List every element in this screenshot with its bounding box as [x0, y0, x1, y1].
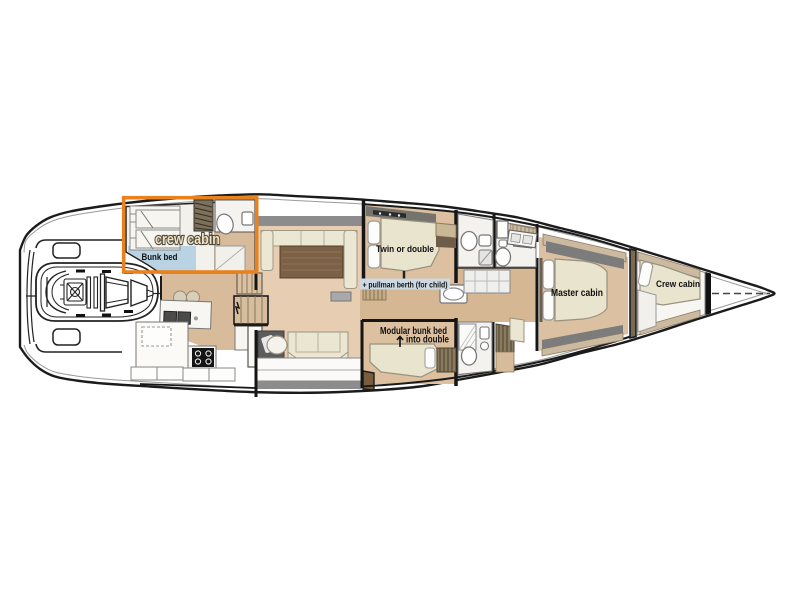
svg-text:into double: into double — [406, 335, 449, 346]
svg-text:Bunk bed: Bunk bed — [142, 252, 178, 262]
svg-text:crew cabin: crew cabin — [155, 231, 220, 248]
svg-text:+ pullman berth (for child): + pullman berth (for child) — [363, 280, 448, 290]
svg-text:Master cabin: Master cabin — [551, 288, 603, 299]
svg-text:Twin or double: Twin or double — [376, 244, 434, 255]
svg-text:Crew cabin: Crew cabin — [656, 279, 700, 290]
